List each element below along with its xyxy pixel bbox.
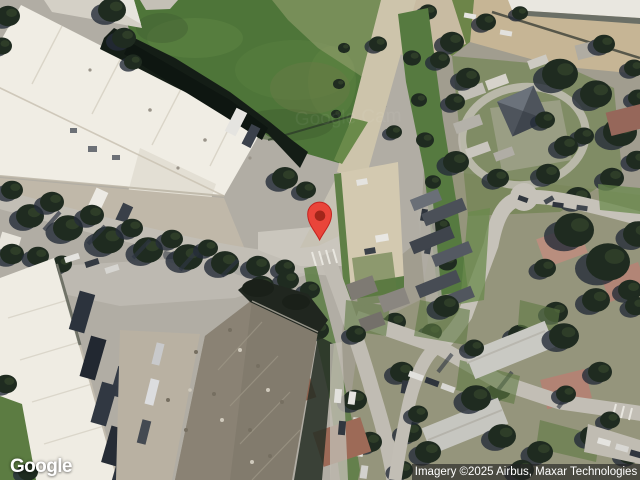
svg-text:Google Cam: Google Cam	[294, 105, 401, 130]
